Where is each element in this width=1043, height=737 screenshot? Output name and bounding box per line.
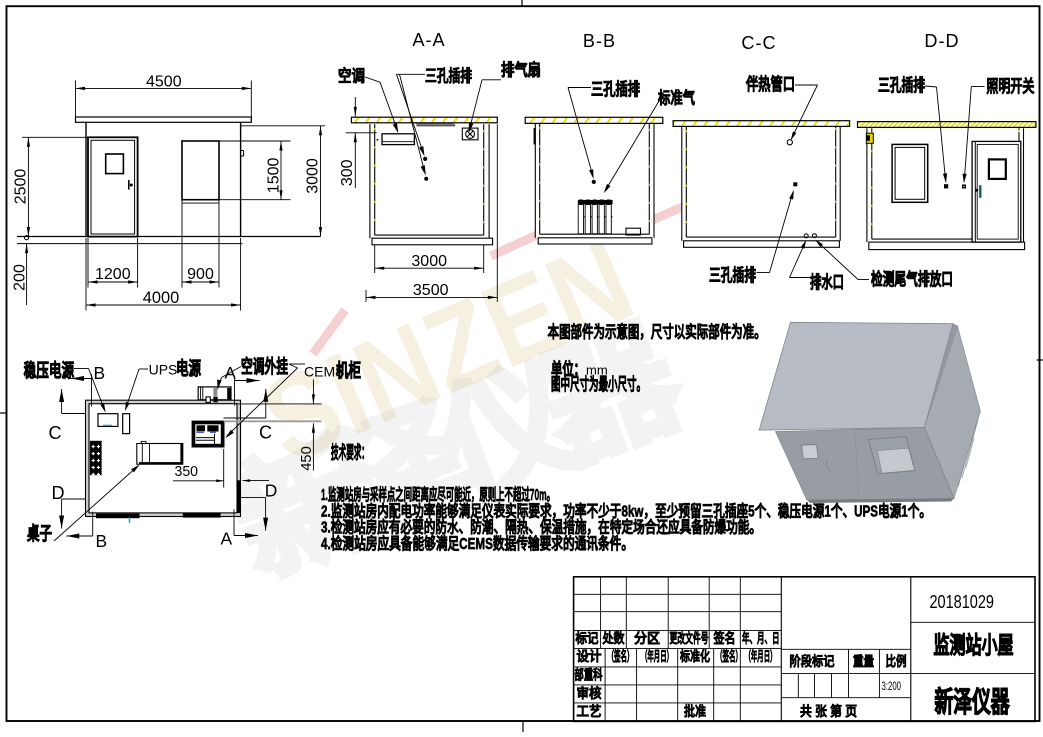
svg-text:三孔插排: 三孔插排 (425, 67, 472, 86)
svg-text:20181029: 20181029 (930, 592, 995, 612)
svg-text:A-A: A-A (412, 30, 445, 50)
svg-text:监测站小屋: 监测站小屋 (934, 632, 1014, 658)
svg-text:标准化: 标准化 (679, 648, 710, 664)
svg-text:350: 350 (175, 464, 199, 480)
svg-text:3:200: 3:200 (882, 679, 902, 693)
svg-text:空调: 空调 (338, 67, 365, 86)
svg-text:桌子: 桌子 (26, 523, 52, 544)
svg-text:重量: 重量 (853, 653, 874, 669)
svg-text:3500: 3500 (413, 282, 449, 299)
svg-text:200: 200 (11, 264, 28, 291)
svg-text:本图部件为示意图，尺寸以实际部件为准。: 本图部件为示意图，尺寸以实际部件为准。 (548, 323, 766, 342)
svg-text:新泽仪器: 新泽仪器 (935, 687, 1010, 719)
svg-text:比例: 比例 (886, 653, 907, 669)
svg-text:（年月日）: （年月日） (745, 648, 777, 664)
svg-text:3.检测站房应有必要的防水、防潮、隔热、保温措施，在特定场合: 3.检测站房应有必要的防水、防潮、隔热、保温措施，在特定场合还应具备防爆功能。 (321, 518, 761, 537)
svg-text:年、月、日: 年、月、日 (742, 630, 780, 646)
svg-text:1.监测站房与采样点之间距离应尽可能近，原则上不超过70m。: 1.监测站房与采样点之间距离应尽可能近，原则上不超过70m。 (321, 485, 555, 504)
svg-text:标准气: 标准气 (657, 89, 695, 108)
svg-text:900: 900 (187, 266, 214, 283)
svg-text:部重科: 部重科 (575, 667, 603, 683)
svg-text:3000: 3000 (304, 158, 321, 194)
svg-text:工艺: 工艺 (577, 703, 602, 719)
svg-text:伴热管口: 伴热管口 (745, 74, 795, 94)
svg-text:A: A (221, 529, 233, 549)
svg-text:标记: 标记 (575, 630, 599, 646)
svg-text:2.监测站房内配电功率能够满足仪表实际要求，功率不少于8kw: 2.监测站房内配电功率能够满足仪表实际要求，功率不少于8kw，至少预留三孔插座5… (321, 501, 931, 520)
svg-text:（签名）: （签名） (608, 648, 634, 664)
svg-text:排水口: 排水口 (810, 272, 844, 292)
svg-text:三孔插排: 三孔插排 (709, 265, 756, 285)
svg-text:B: B (96, 531, 108, 551)
svg-text:C: C (49, 423, 62, 443)
svg-text:1200: 1200 (95, 266, 131, 283)
svg-text:2500: 2500 (12, 169, 29, 205)
svg-text:4.检测站房应具备能够满足CEMS数据传输要求的通讯条件。: 4.检测站房应具备能够满足CEMS数据传输要求的通讯条件。 (321, 534, 633, 553)
svg-text:（签名）: （签名） (716, 648, 742, 664)
svg-text:批准: 批准 (684, 703, 706, 719)
svg-text:1500: 1500 (265, 158, 282, 194)
svg-text:D-D: D-D (924, 31, 959, 51)
svg-text:（年月日）: （年月日） (641, 648, 673, 664)
svg-text:D: D (265, 481, 278, 501)
svg-text:三孔插排: 三孔插排 (878, 75, 925, 95)
svg-text:共 张 第 页: 共 张 第 页 (800, 703, 857, 719)
svg-text:照明开关: 照明开关 (986, 76, 1034, 96)
svg-text:技术要求：: 技术要求： (331, 442, 369, 463)
svg-text:更改文件号: 更改文件号 (670, 630, 709, 646)
svg-text:4500: 4500 (146, 74, 182, 91)
svg-text:审核: 审核 (577, 685, 602, 701)
svg-text:阶段标记: 阶段标记 (790, 653, 835, 669)
svg-text:处数: 处数 (602, 630, 625, 646)
svg-text:A: A (225, 364, 237, 383)
svg-text:UPS: UPS (149, 362, 178, 378)
svg-text:电源: 电源 (176, 358, 201, 379)
svg-text:排气扇: 排气扇 (501, 61, 541, 80)
svg-text:C-C: C-C (741, 33, 776, 53)
svg-text:空调外挂: 空调外挂 (241, 356, 288, 377)
svg-text:分区: 分区 (634, 631, 660, 646)
svg-text:3000: 3000 (411, 253, 447, 270)
svg-text:450: 450 (299, 446, 315, 471)
svg-text:三孔插排: 三孔插排 (591, 79, 640, 99)
svg-text:D: D (52, 483, 65, 503)
svg-text:设计: 设计 (577, 648, 602, 664)
svg-text:C: C (259, 423, 272, 443)
svg-text:机柜: 机柜 (336, 360, 361, 381)
svg-text:图中尺寸为最小尺寸。: 图中尺寸为最小尺寸。 (551, 374, 646, 394)
svg-text:检测尾气排放口: 检测尾气排放口 (871, 269, 953, 289)
svg-text:B: B (94, 363, 106, 383)
svg-text:签名: 签名 (713, 630, 736, 646)
svg-text:4000: 4000 (143, 289, 179, 307)
svg-text:B-B: B-B (583, 31, 616, 51)
svg-text:稳压电源: 稳压电源 (24, 360, 75, 381)
svg-text:300: 300 (339, 159, 356, 186)
